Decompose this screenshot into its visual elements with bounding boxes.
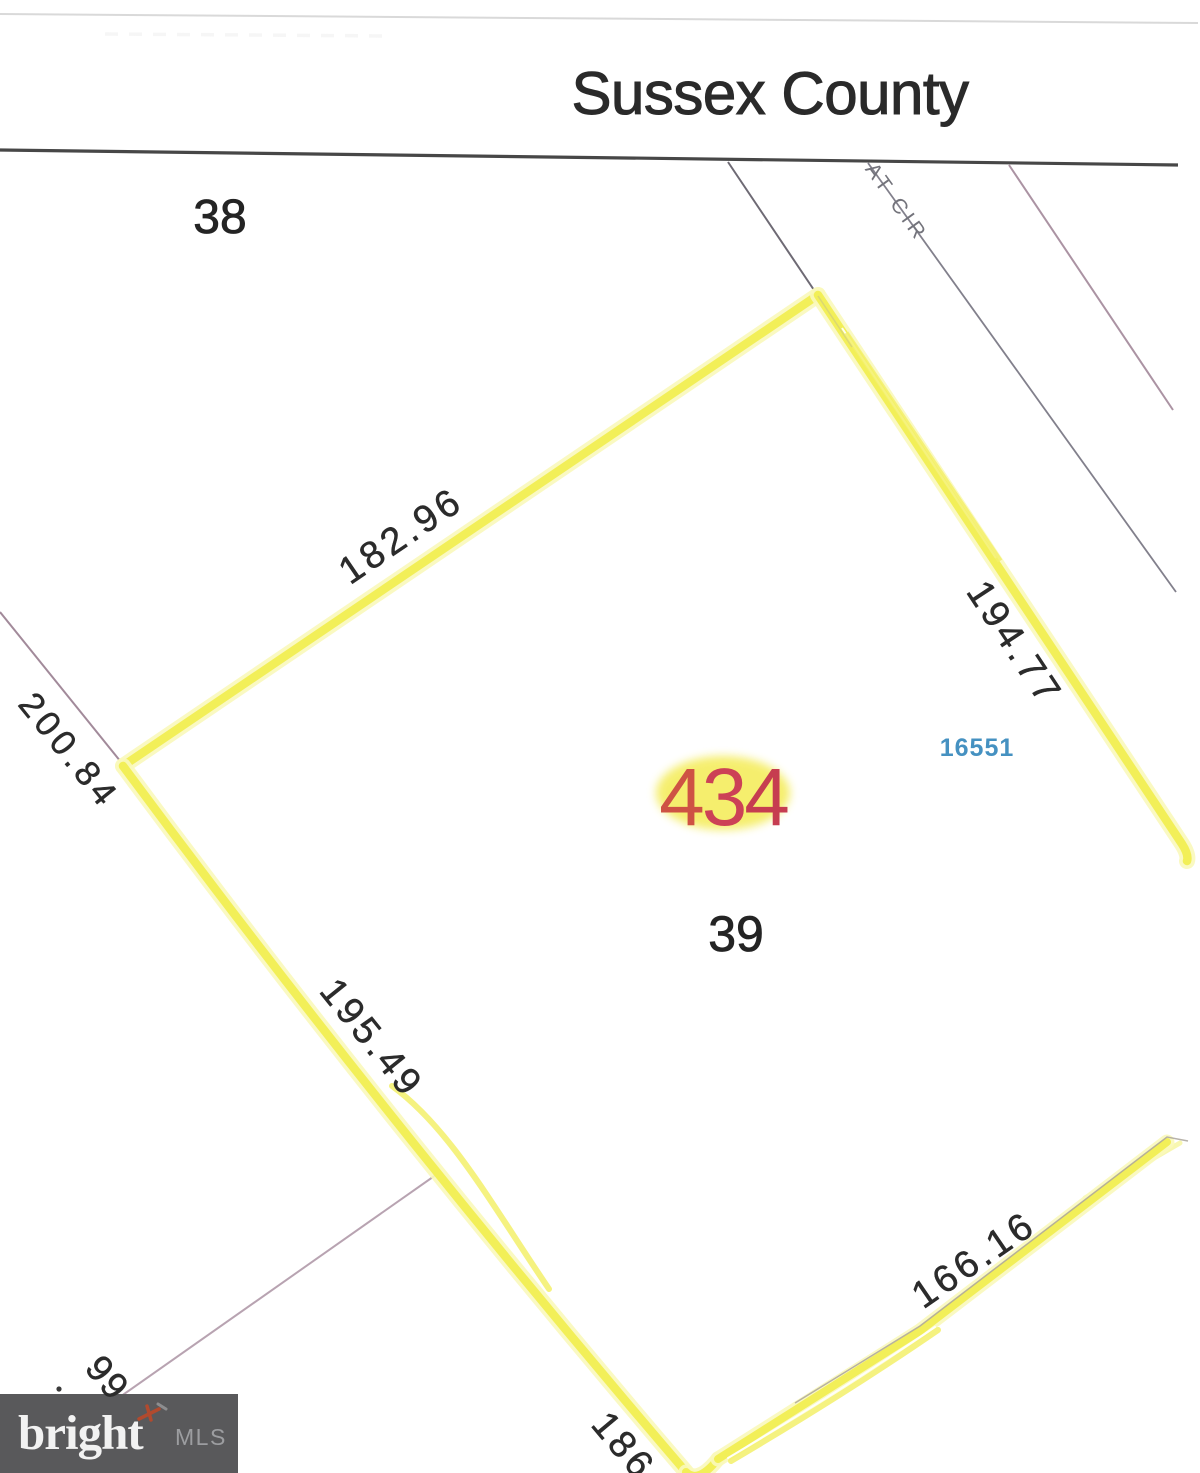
svg-text:Sussex County: Sussex County [571,60,969,127]
svg-text:bright: bright [18,1405,144,1460]
svg-text:AT CIR: AT CIR [860,159,932,246]
svg-text:200.84: 200.84 [11,685,127,816]
svg-text:16551: 16551 [940,734,1015,762]
svg-text:MLS: MLS [175,1424,227,1450]
svg-text:38: 38 [193,191,246,244]
svg-text:434: 434 [659,752,788,843]
svg-text:39: 39 [708,906,764,962]
